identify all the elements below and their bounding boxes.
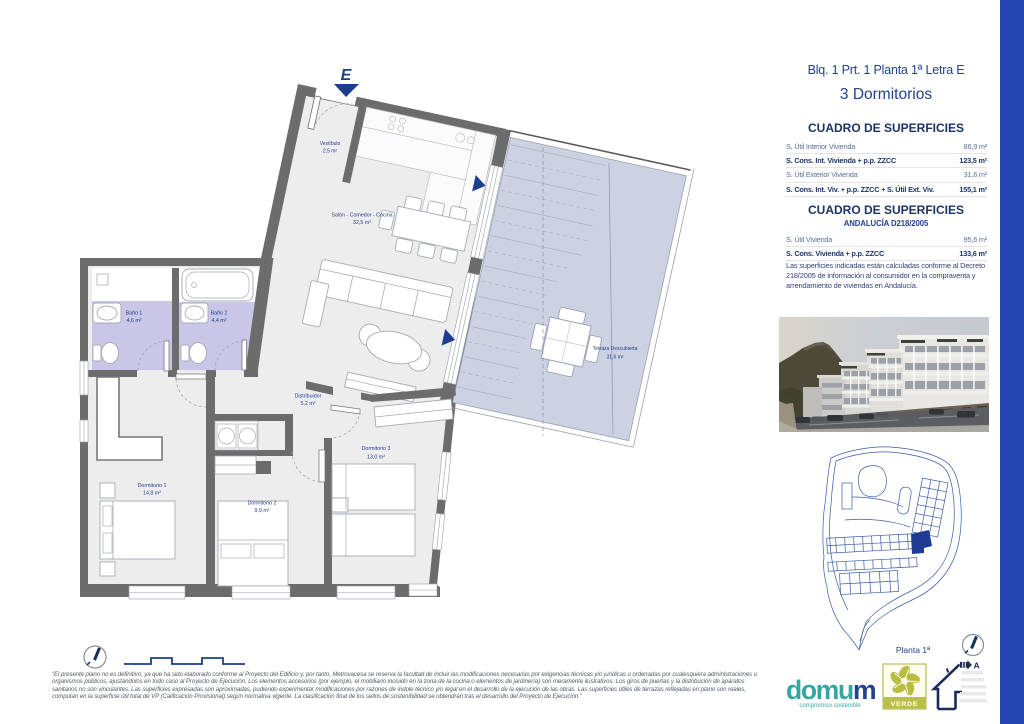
svg-text:Distribuidor: Distribuidor xyxy=(295,394,322,400)
svg-text:Planta 1ª: Planta 1ª xyxy=(896,645,931,655)
svg-text:Salón - Comedor - Cocina: Salón - Comedor - Cocina xyxy=(331,213,392,219)
svg-text:32,5 m²: 32,5 m² xyxy=(353,220,371,226)
svg-text:Dormitorio 2: Dormitorio 2 xyxy=(248,501,277,507)
svg-text:Vestíbulo: Vestíbulo xyxy=(320,141,341,147)
svg-text:5,2 m²: 5,2 m² xyxy=(300,401,315,407)
svg-text:2,5 m²: 2,5 m² xyxy=(323,149,338,155)
svg-text:domum: domum xyxy=(786,675,875,705)
svg-text:13,0 m²: 13,0 m² xyxy=(367,455,385,461)
svg-text:VERDE: VERDE xyxy=(891,701,918,708)
svg-text:Baño 2: Baño 2 xyxy=(211,311,228,317)
svg-text:4,6 m²: 4,6 m² xyxy=(126,318,141,324)
svg-text:Dormitorio 1: Dormitorio 1 xyxy=(138,483,167,489)
svg-text:31,6 m²: 31,6 m² xyxy=(607,355,624,361)
svg-text:9,9 m²: 9,9 m² xyxy=(254,508,269,514)
svg-text:14,8 m²: 14,8 m² xyxy=(143,491,161,497)
svg-text:E: E xyxy=(341,67,353,84)
svg-text:Terraza Descubierta: Terraza Descubierta xyxy=(593,346,638,352)
svg-text:4,4 m²: 4,4 m² xyxy=(211,318,226,324)
svg-text:Dormitorio 3: Dormitorio 3 xyxy=(362,446,391,452)
svg-text:Baño 1: Baño 1 xyxy=(126,311,143,317)
svg-text:A: A xyxy=(974,661,980,671)
svg-text:compromiso sostenible: compromiso sostenible xyxy=(799,703,861,709)
